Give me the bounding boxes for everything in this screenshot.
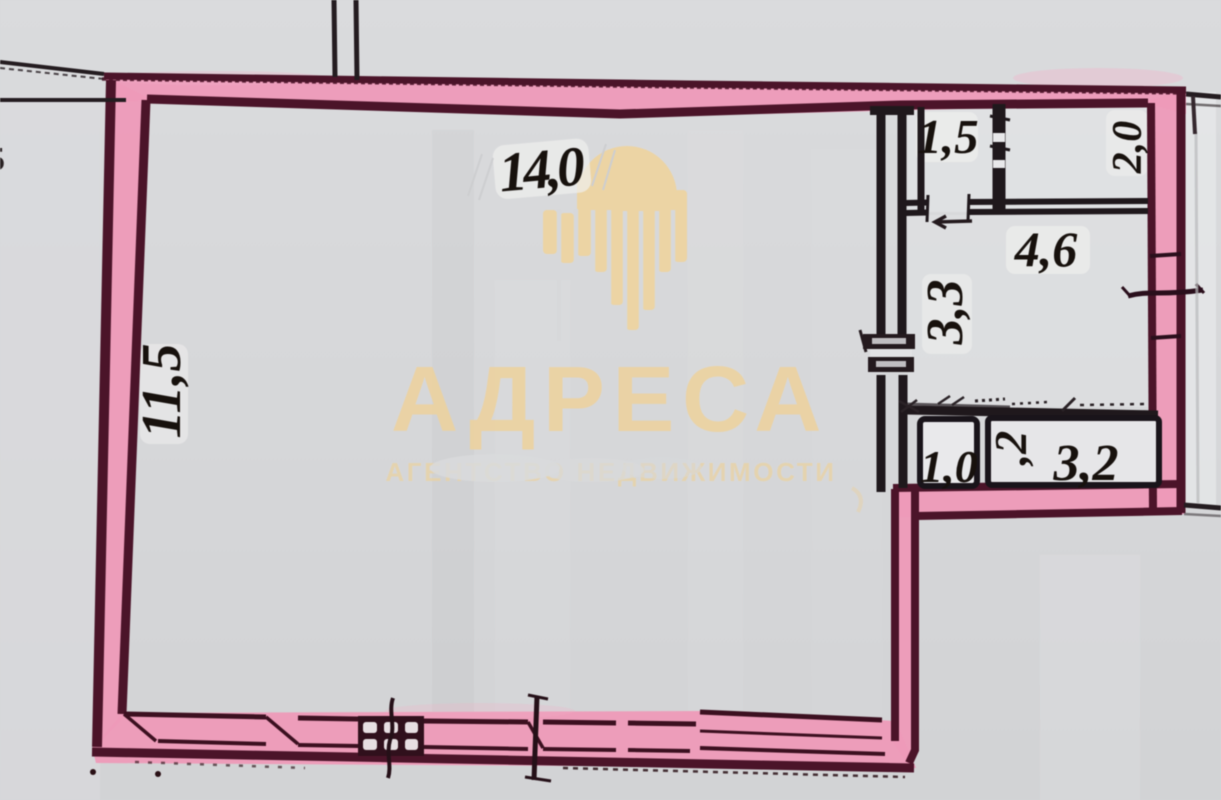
svg-text:4,6: 4,6 bbox=[1014, 221, 1078, 277]
svg-text:14,0: 14,0 bbox=[496, 135, 587, 204]
svg-text:АДРЕСА: АДРЕСА bbox=[391, 347, 829, 451]
svg-text:3,3: 3,3 bbox=[917, 280, 974, 346]
svg-text:3,2: 3,2 bbox=[1053, 435, 1119, 492]
svg-text:1,0: 1,0 bbox=[920, 441, 978, 492]
svg-text:,2: ,2 bbox=[985, 431, 1036, 467]
svg-text:11,5: 11,5 bbox=[131, 344, 193, 439]
svg-text:2,0: 2,0 bbox=[1105, 121, 1151, 175]
svg-text:1,5: 1,5 bbox=[917, 109, 978, 164]
svg-text:5: 5 bbox=[0, 141, 5, 178]
